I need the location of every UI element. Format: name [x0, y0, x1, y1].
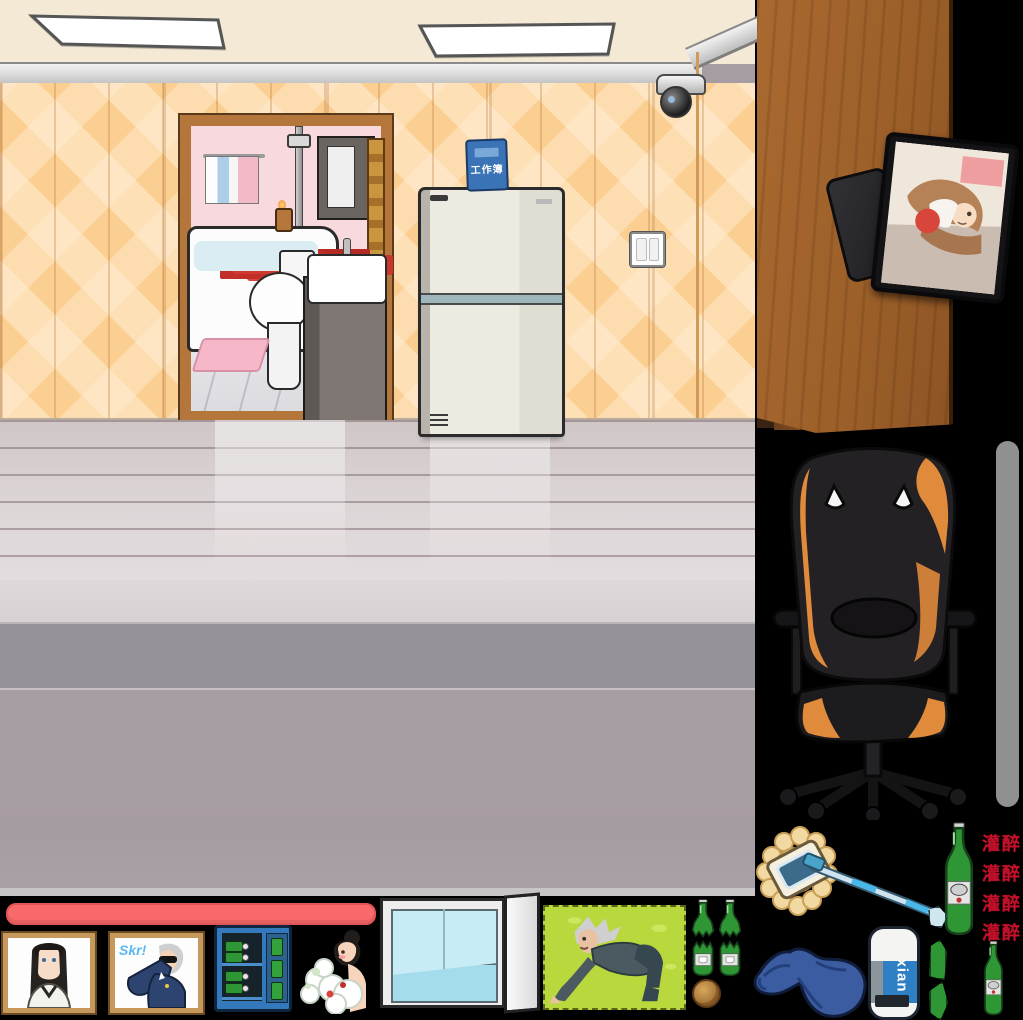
bathing-woman[interactable] — [296, 928, 378, 1014]
room-background: 工作簿 — [0, 0, 755, 896]
ceiling-light-left — [22, 12, 228, 54]
foreground-surface — [0, 688, 755, 896]
foreground-edge — [0, 622, 755, 690]
game-stage: 工作簿 — [0, 0, 1023, 1020]
ceiling-light-right — [410, 20, 624, 60]
refrigerator[interactable] — [418, 187, 565, 437]
workbook-label: 工作簿 — [470, 160, 504, 176]
broken-bottle-body[interactable] — [691, 940, 715, 977]
picture-crawling-man[interactable] — [543, 905, 686, 1010]
workbook-tag — [474, 148, 498, 158]
light-switch[interactable] — [630, 232, 665, 267]
drunk-action-label[interactable]: 灌醉 — [980, 892, 1023, 916]
camera-lens-icon — [668, 96, 675, 103]
wood-floor — [0, 420, 755, 580]
switch-key[interactable] — [649, 238, 660, 261]
glass-shard[interactable] — [929, 982, 948, 1020]
fridge-brand-mark — [536, 199, 552, 204]
floor-reflection — [215, 420, 345, 580]
broken-bottle-neck[interactable] — [718, 898, 742, 938]
box-door[interactable] — [504, 892, 540, 1013]
pink-bath-mat — [191, 338, 270, 372]
portrait-woman[interactable] — [3, 933, 95, 1013]
broken-bottle-neck[interactable] — [691, 898, 715, 938]
graffiti-skr-text: Skr! — [119, 942, 146, 958]
workbook-sign[interactable]: 工作簿 — [465, 138, 509, 191]
monitor-screen — [880, 141, 1010, 294]
beer-bottle[interactable] — [941, 822, 977, 937]
refrigerator-divider — [421, 293, 562, 305]
freezer-handle — [430, 195, 448, 201]
eraser[interactable]: xian — [868, 926, 920, 1020]
towels[interactable] — [205, 156, 259, 204]
toilet-base — [267, 322, 301, 390]
floor-reflection — [430, 430, 550, 580]
floor-smooth-area — [0, 580, 755, 622]
foreground-rim — [0, 888, 755, 896]
box-divider — [443, 909, 445, 979]
shower-head-icon[interactable] — [287, 134, 311, 148]
bathroom-doorway[interactable] — [180, 115, 392, 422]
drunk-action-label[interactable]: 灌醉 — [980, 862, 1023, 886]
fridge-vents — [430, 414, 448, 428]
glass-shard[interactable] — [929, 940, 947, 980]
broken-bottle-body[interactable] — [718, 940, 742, 977]
drunk-action-label[interactable]: 灌醉 — [980, 832, 1023, 856]
fridge-door — [266, 933, 288, 1003]
wall-mounted-monitor[interactable] — [870, 131, 1020, 304]
portrait-man-dab[interactable]: Skr! — [110, 933, 203, 1013]
security-camera[interactable] — [660, 86, 692, 118]
eraser-slot — [875, 995, 909, 1007]
scrollbar-thumb[interactable] — [996, 441, 1019, 807]
mini-fridge-with-beer[interactable] — [214, 925, 292, 1012]
eraser-brand-text: xian — [894, 958, 911, 992]
wall-corner-edge — [696, 52, 699, 420]
open-display-box[interactable] — [380, 898, 505, 1008]
walnut[interactable] — [692, 979, 721, 1008]
switch-key[interactable] — [636, 238, 647, 261]
blue-clothes-pile[interactable] — [750, 926, 872, 1020]
gaming-chair[interactable] — [756, 442, 994, 820]
candle[interactable] — [275, 208, 293, 232]
health-bar — [6, 903, 376, 925]
sink[interactable] — [307, 254, 387, 304]
fridge-interior — [222, 933, 262, 1001]
mop[interactable] — [754, 820, 954, 930]
beer-bottle-small[interactable] — [982, 940, 1005, 1017]
